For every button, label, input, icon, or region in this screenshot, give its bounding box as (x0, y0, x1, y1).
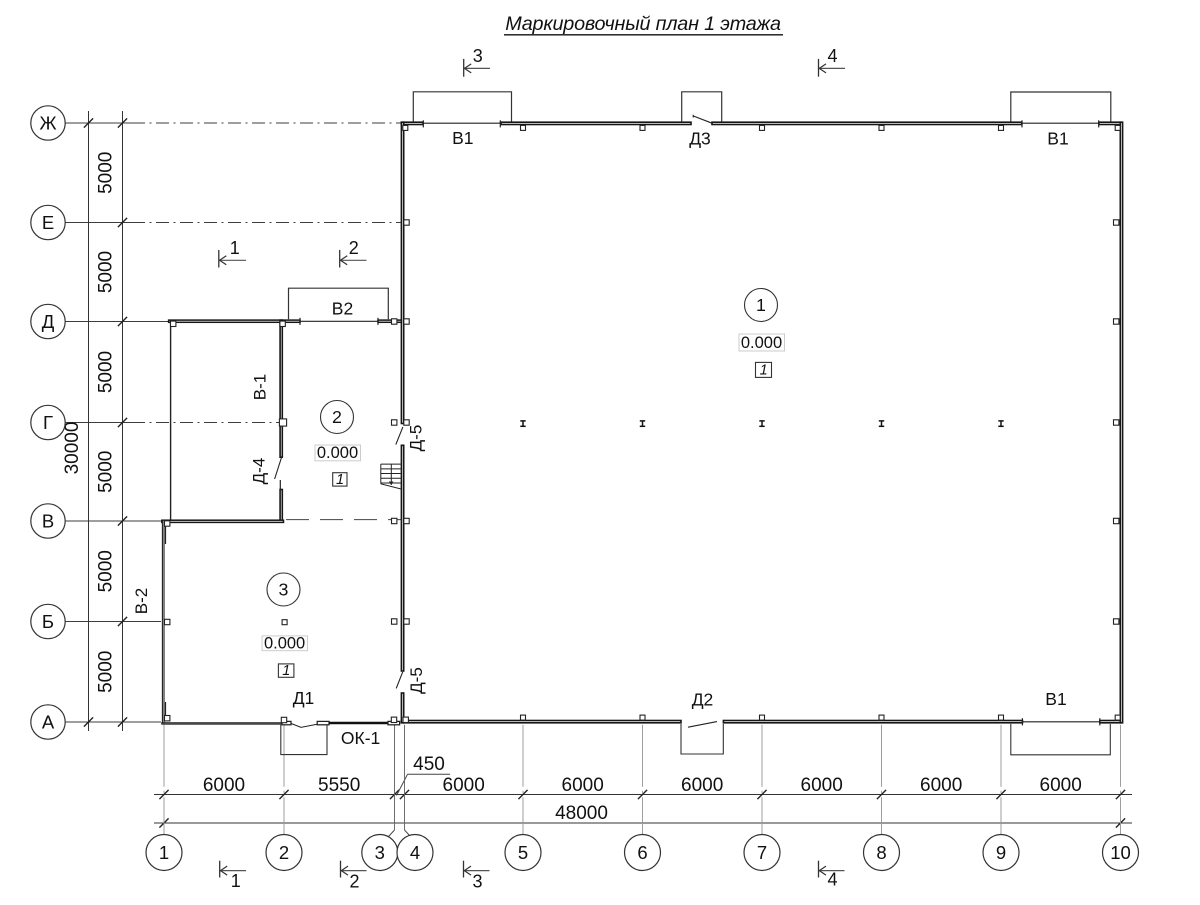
svg-text:В-2: В-2 (132, 588, 151, 614)
svg-text:5000: 5000 (96, 550, 117, 592)
svg-text:Ж: Ж (39, 113, 56, 134)
svg-text:2: 2 (349, 872, 359, 892)
svg-text:5000: 5000 (96, 351, 117, 393)
svg-text:Д-5: Д-5 (407, 425, 426, 452)
svg-text:Е: Е (42, 212, 54, 233)
svg-text:В1: В1 (452, 128, 473, 148)
svg-text:Д3: Д3 (689, 129, 711, 149)
svg-text:6: 6 (637, 842, 647, 863)
svg-text:Д: Д (42, 311, 55, 332)
svg-text:450: 450 (413, 754, 445, 775)
svg-text:Г: Г (43, 412, 53, 433)
svg-text:Б: Б (42, 611, 54, 632)
svg-text:0.000: 0.000 (264, 634, 305, 652)
svg-text:Д2: Д2 (692, 690, 714, 710)
svg-text:4: 4 (827, 870, 837, 890)
svg-text:В1: В1 (1047, 129, 1068, 149)
svg-text:5000: 5000 (96, 152, 117, 194)
svg-text:0.000: 0.000 (741, 334, 782, 352)
svg-text:В: В (42, 511, 54, 532)
svg-text:6000: 6000 (801, 775, 843, 796)
svg-text:6000: 6000 (443, 775, 485, 796)
svg-text:7: 7 (757, 842, 767, 863)
svg-text:6000: 6000 (203, 775, 245, 796)
svg-text:5000: 5000 (96, 251, 117, 293)
svg-text:3: 3 (472, 872, 482, 892)
svg-text:5550: 5550 (318, 775, 360, 796)
svg-text:Маркировочный план 1 этажа: Маркировочный план 1 этажа (505, 13, 781, 35)
svg-text:4: 4 (410, 842, 420, 863)
svg-text:2: 2 (279, 842, 289, 863)
svg-text:1: 1 (231, 871, 241, 891)
svg-text:В-1: В-1 (251, 374, 270, 400)
svg-text:Д-5: Д-5 (407, 667, 426, 694)
svg-text:9: 9 (996, 842, 1006, 863)
svg-text:30000: 30000 (62, 422, 83, 475)
svg-text:1: 1 (760, 363, 768, 379)
svg-text:5000: 5000 (96, 651, 117, 693)
svg-text:48000: 48000 (555, 803, 608, 824)
svg-text:Д1: Д1 (293, 688, 315, 708)
svg-text:1: 1 (336, 472, 344, 488)
svg-text:3: 3 (473, 46, 483, 66)
svg-text:6000: 6000 (920, 775, 962, 796)
svg-text:1: 1 (756, 295, 766, 315)
svg-text:2: 2 (349, 238, 359, 258)
svg-text:5000: 5000 (96, 451, 117, 493)
svg-text:0.000: 0.000 (317, 444, 358, 462)
svg-text:2: 2 (332, 407, 342, 427)
svg-text:ОК-1: ОК-1 (341, 728, 380, 748)
svg-text:В2: В2 (332, 299, 353, 319)
svg-text:А: А (42, 712, 55, 733)
svg-text:В1: В1 (1045, 689, 1066, 709)
svg-text:6000: 6000 (681, 775, 723, 796)
svg-text:6000: 6000 (562, 775, 604, 796)
svg-text:1: 1 (230, 238, 240, 258)
svg-text:8: 8 (876, 842, 886, 863)
svg-text:10: 10 (1110, 842, 1131, 863)
svg-text:6000: 6000 (1040, 775, 1082, 796)
svg-text:1: 1 (159, 842, 169, 863)
svg-text:3: 3 (375, 842, 385, 863)
svg-text:4: 4 (827, 46, 837, 66)
svg-text:5: 5 (518, 842, 528, 863)
svg-text:Д-4: Д-4 (250, 458, 269, 485)
svg-text:1: 1 (282, 663, 290, 679)
svg-text:3: 3 (279, 580, 289, 600)
